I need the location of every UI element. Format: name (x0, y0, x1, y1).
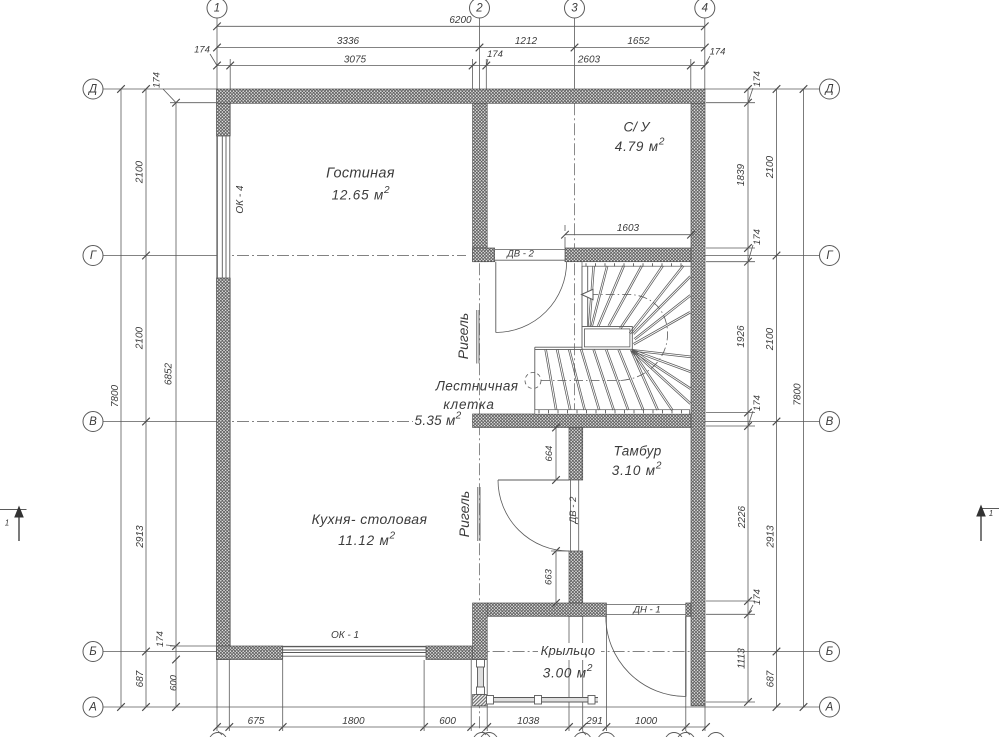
svg-text:7800: 7800 (793, 383, 804, 406)
svg-text:ДН - 1: ДН - 1 (632, 605, 660, 616)
svg-text:174: 174 (194, 45, 210, 56)
svg-text:600: 600 (169, 674, 180, 691)
svg-text:3: 3 (571, 3, 578, 15)
svg-text:Тамбур: Тамбур (613, 444, 661, 459)
svg-text:1: 1 (5, 519, 9, 528)
svg-text:1603: 1603 (617, 223, 640, 234)
svg-text:174: 174 (710, 47, 726, 58)
svg-text:Крыльцо: Крыльцо (541, 643, 596, 658)
svg-text:Ригель: Ригель (456, 491, 472, 537)
svg-text:2100: 2100 (765, 327, 776, 351)
svg-text:1926: 1926 (736, 325, 747, 348)
svg-text:664: 664 (544, 446, 555, 462)
svg-text:174: 174 (155, 631, 166, 647)
svg-text:ДВ - 2: ДВ - 2 (568, 496, 579, 524)
svg-text:663: 663 (544, 568, 555, 585)
svg-text:ОК - 1: ОК - 1 (331, 630, 359, 641)
svg-text:12.65 м2: 12.65 м2 (332, 185, 391, 203)
svg-text:В: В (89, 416, 97, 428)
svg-text:С/ У: С/ У (624, 120, 651, 135)
svg-text:3.10 м2: 3.10 м2 (612, 460, 662, 478)
svg-text:А: А (825, 702, 834, 714)
svg-text:Г: Г (826, 250, 833, 262)
svg-text:2913: 2913 (135, 525, 146, 549)
svg-text:174: 174 (752, 395, 763, 411)
svg-text:Г: Г (90, 250, 97, 262)
svg-text:Б: Б (826, 646, 834, 658)
svg-text:11.12 м2: 11.12 м2 (338, 530, 396, 548)
svg-text:Д: Д (823, 84, 833, 96)
svg-text:7800: 7800 (110, 384, 121, 407)
svg-text:Кухня- столовая: Кухня- столовая (312, 511, 428, 527)
svg-text:6852: 6852 (164, 362, 175, 385)
svg-text:4: 4 (702, 3, 708, 15)
svg-text:Б: Б (89, 646, 97, 658)
svg-text:1: 1 (214, 3, 220, 15)
svg-text:1839: 1839 (736, 163, 747, 186)
svg-text:5.35 м2: 5.35 м2 (415, 410, 462, 428)
svg-text:1212: 1212 (515, 36, 538, 47)
svg-text:2603: 2603 (577, 54, 601, 65)
svg-text:2100: 2100 (765, 155, 776, 179)
svg-text:3336: 3336 (337, 36, 360, 47)
svg-text:1: 1 (989, 509, 993, 518)
svg-text:291: 291 (585, 716, 603, 727)
svg-text:2100: 2100 (135, 160, 146, 184)
svg-text:174: 174 (752, 589, 763, 605)
svg-text:675: 675 (248, 716, 265, 727)
svg-text:2100: 2100 (135, 326, 146, 350)
svg-text:1000: 1000 (635, 716, 658, 727)
svg-text:А: А (88, 702, 97, 714)
svg-text:2226: 2226 (737, 505, 748, 529)
svg-text:1038: 1038 (517, 716, 540, 727)
svg-text:174: 174 (152, 72, 163, 88)
svg-text:174: 174 (752, 229, 763, 245)
svg-text:ДВ - 2: ДВ - 2 (506, 248, 534, 259)
svg-text:Ригель: Ригель (455, 313, 471, 359)
svg-text:ОК - 4: ОК - 4 (235, 185, 246, 214)
svg-text:Д: Д (87, 84, 97, 96)
svg-text:687: 687 (135, 670, 146, 687)
svg-text:3075: 3075 (344, 54, 367, 65)
svg-text:1800: 1800 (342, 716, 365, 727)
svg-text:3.00 м2: 3.00 м2 (543, 663, 593, 681)
svg-text:174: 174 (752, 71, 763, 87)
svg-text:1113: 1113 (737, 648, 748, 669)
svg-text:600: 600 (439, 716, 456, 727)
svg-text:Лестничная: Лестничная (435, 379, 519, 394)
svg-text:2913: 2913 (766, 525, 777, 549)
svg-text:В: В (826, 416, 834, 428)
svg-text:клетка: клетка (443, 397, 494, 412)
svg-text:6200: 6200 (449, 15, 472, 26)
svg-text:Гостиная: Гостиная (326, 165, 395, 181)
svg-text:174: 174 (487, 49, 503, 60)
svg-text:687: 687 (766, 670, 777, 687)
svg-text:1652: 1652 (627, 36, 650, 47)
svg-text:4.79 м2: 4.79 м2 (615, 136, 665, 154)
svg-text:2: 2 (475, 3, 483, 15)
